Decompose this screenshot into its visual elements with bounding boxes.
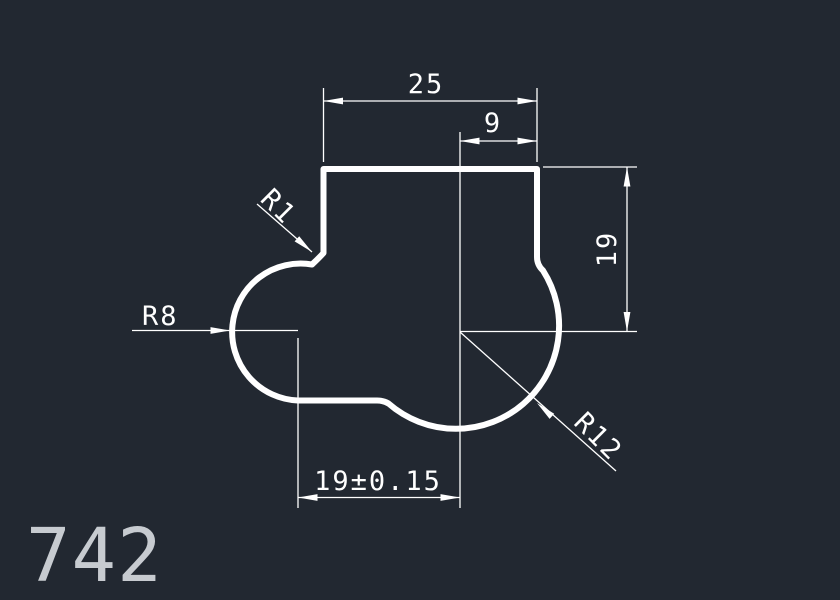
cad-viewport[interactable]: 25 9 19 19±0.15 R8 xyxy=(0,0,840,600)
dimension-value-top-right-width: 9 xyxy=(484,108,502,139)
dimension-value-bottom-width: 19±0.15 xyxy=(314,466,442,497)
part-number: 742 xyxy=(26,513,163,599)
dimension-value-right-height: 19 xyxy=(592,231,623,268)
radius-value-r8: R8 xyxy=(142,301,179,332)
dimension-bottom-width[interactable]: 19±0.15 xyxy=(298,466,460,501)
drawing-svg: 25 9 19 19±0.15 R8 xyxy=(0,0,840,600)
dimension-value-top-width: 25 xyxy=(408,69,445,100)
